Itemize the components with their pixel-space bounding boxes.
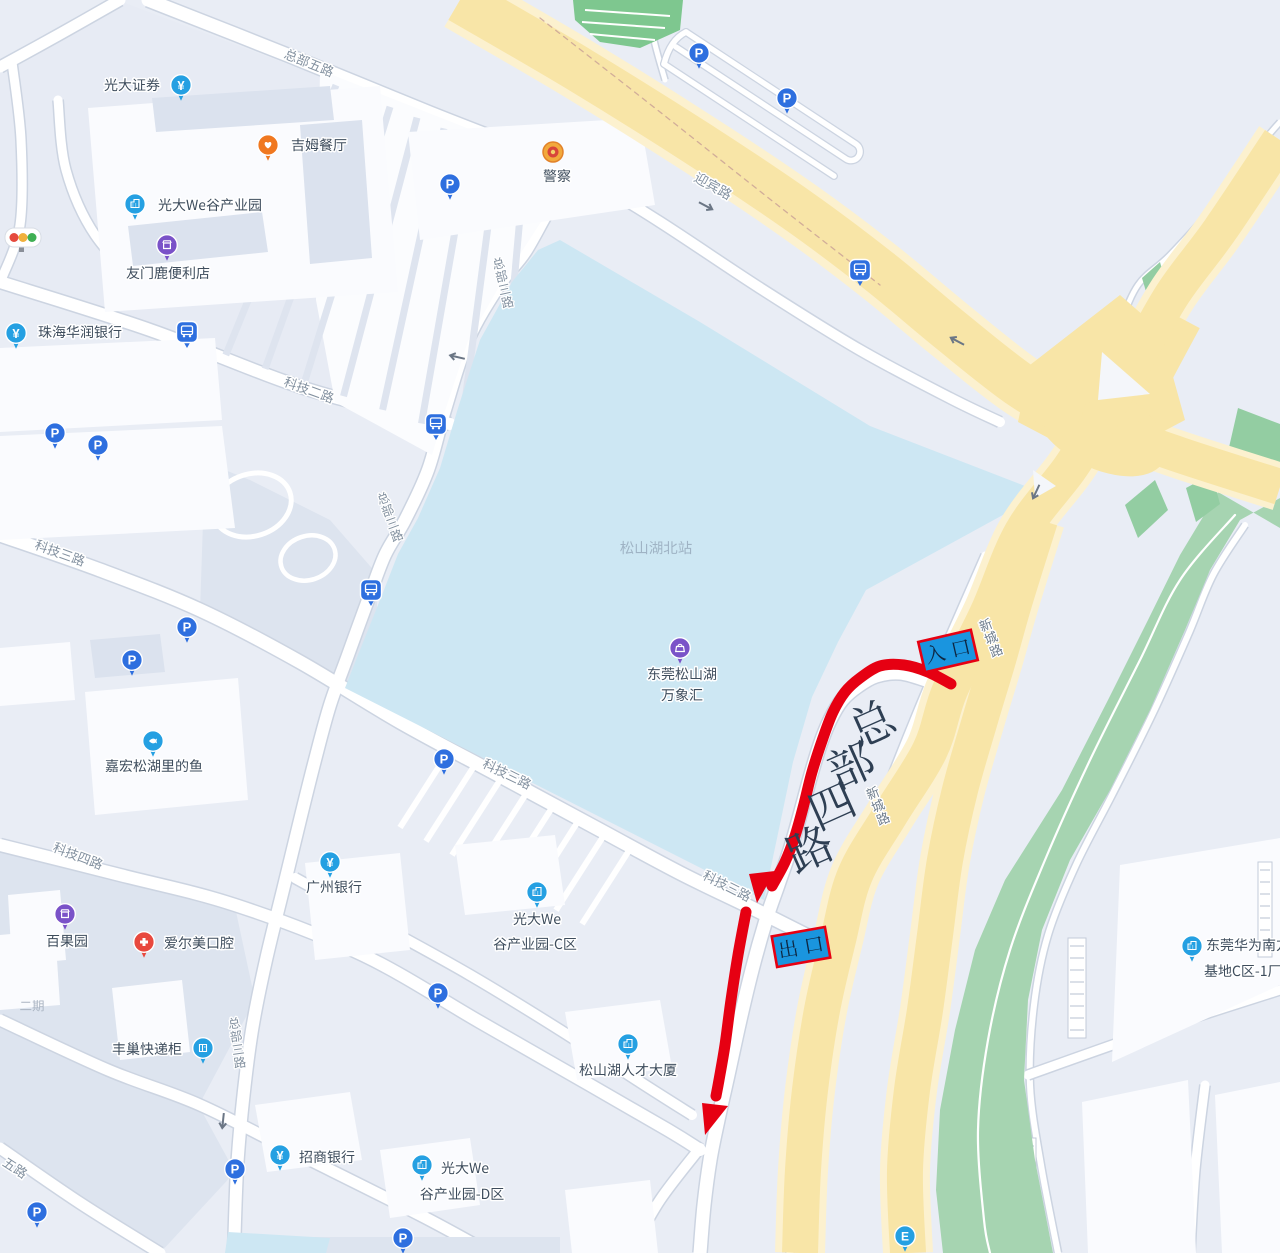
svg-text:P: P (128, 653, 137, 668)
svg-text:P: P (183, 620, 192, 635)
svg-text:P: P (440, 752, 449, 767)
svg-text:¥: ¥ (326, 855, 334, 870)
svg-text:P: P (399, 1231, 408, 1246)
svg-text:P: P (51, 426, 60, 441)
svg-text:P: P (94, 438, 103, 453)
svg-text:¥: ¥ (276, 1148, 284, 1163)
svg-text:E: E (901, 1230, 909, 1244)
svg-text:¥: ¥ (12, 326, 20, 341)
svg-text:P: P (446, 177, 455, 192)
svg-text:P: P (33, 1205, 42, 1220)
svg-text:¥: ¥ (177, 78, 185, 93)
svg-text:P: P (783, 91, 792, 106)
svg-text:P: P (434, 986, 443, 1001)
svg-text:P: P (231, 1162, 240, 1177)
svg-text:P: P (695, 46, 704, 61)
